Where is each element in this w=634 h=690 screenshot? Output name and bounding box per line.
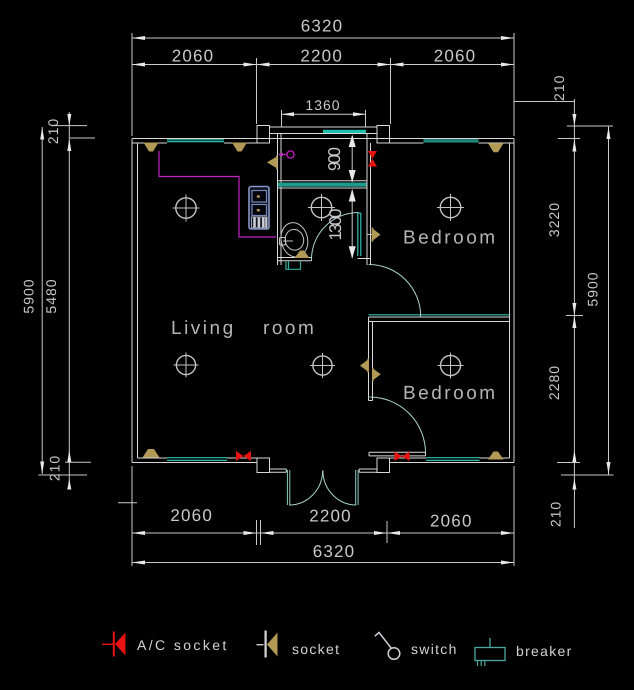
svg-text:5480: 5480 xyxy=(43,278,59,313)
svg-text:2060: 2060 xyxy=(434,47,477,66)
svg-text:2200: 2200 xyxy=(309,507,352,526)
svg-text:210: 210 xyxy=(47,455,63,481)
svg-text:900: 900 xyxy=(325,146,344,171)
svg-text:socket: socket xyxy=(292,641,340,657)
svg-text:A/C socket: A/C socket xyxy=(137,637,229,653)
svg-text:210: 210 xyxy=(547,501,563,527)
svg-text:breaker: breaker xyxy=(516,643,573,659)
svg-text:1360: 1360 xyxy=(305,97,340,113)
svg-text:210: 210 xyxy=(45,118,61,144)
svg-text:room: room xyxy=(263,318,316,339)
svg-text:Bedroom: Bedroom xyxy=(403,383,498,404)
svg-text:2060: 2060 xyxy=(170,506,213,525)
svg-text:Living: Living xyxy=(171,318,236,339)
svg-text:2280: 2280 xyxy=(546,365,562,400)
svg-text:2200: 2200 xyxy=(300,47,343,66)
svg-text:210: 210 xyxy=(551,75,567,101)
svg-text:5900: 5900 xyxy=(21,278,37,313)
svg-text:6320: 6320 xyxy=(301,17,344,36)
svg-text:5900: 5900 xyxy=(585,271,601,306)
svg-text:6320: 6320 xyxy=(313,542,356,561)
svg-text:2060: 2060 xyxy=(430,512,473,531)
svg-text:2060: 2060 xyxy=(172,47,215,66)
svg-text:switch: switch xyxy=(411,641,458,657)
svg-text:3220: 3220 xyxy=(546,202,562,237)
svg-text:1300: 1300 xyxy=(326,208,345,241)
svg-text:Bedroom: Bedroom xyxy=(403,228,498,249)
